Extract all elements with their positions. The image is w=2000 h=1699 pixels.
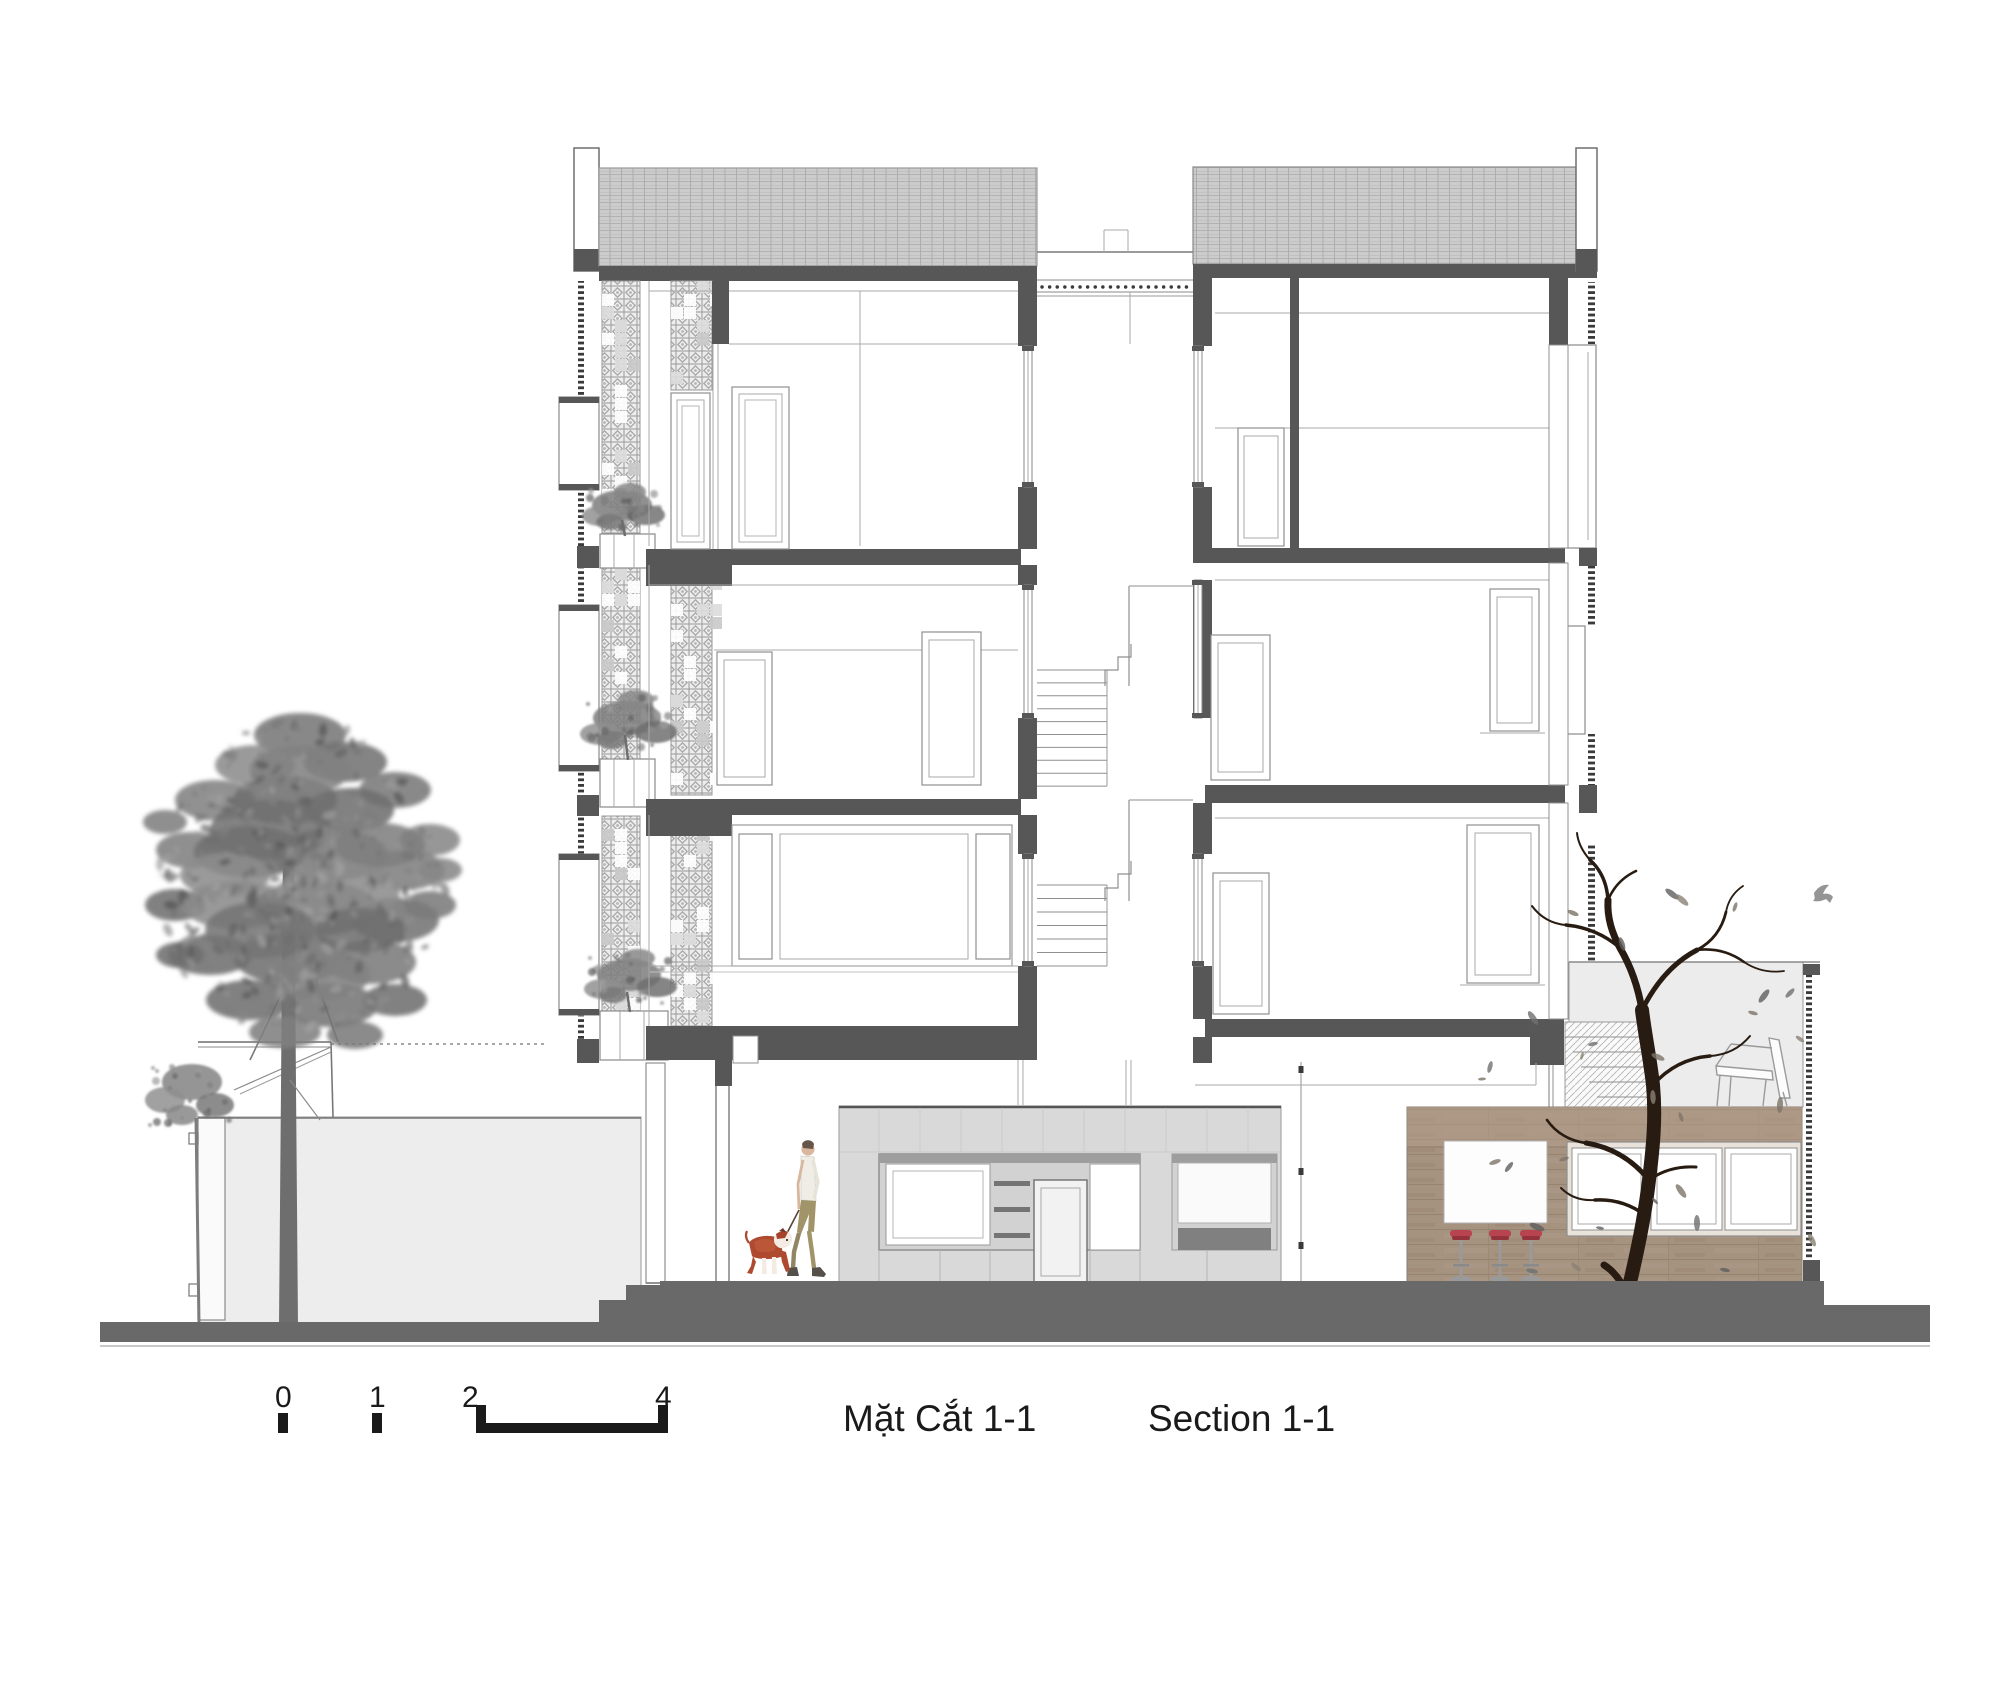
svg-text:Section 1-1: Section 1-1	[1148, 1398, 1335, 1439]
svg-text:1: 1	[369, 1381, 386, 1414]
svg-text:Mặt Cắt 1-1: Mặt Cắt 1-1	[843, 1398, 1036, 1439]
svg-text:0: 0	[275, 1381, 292, 1414]
